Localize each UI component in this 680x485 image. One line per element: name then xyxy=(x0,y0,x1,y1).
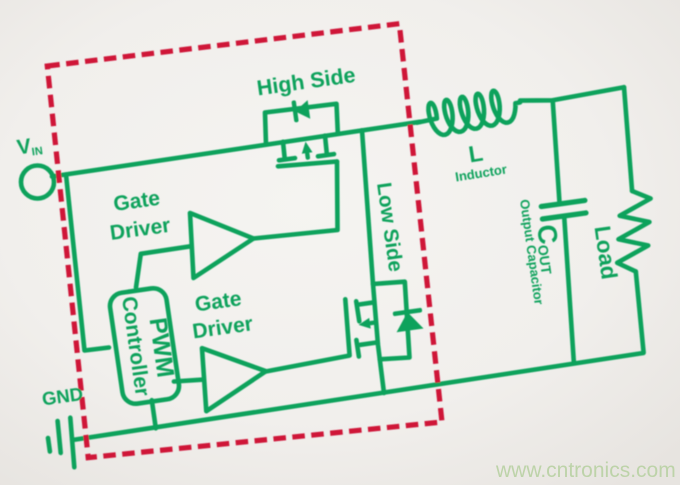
svg-text:www.cntronics.com: www.cntronics.com xyxy=(495,459,676,482)
